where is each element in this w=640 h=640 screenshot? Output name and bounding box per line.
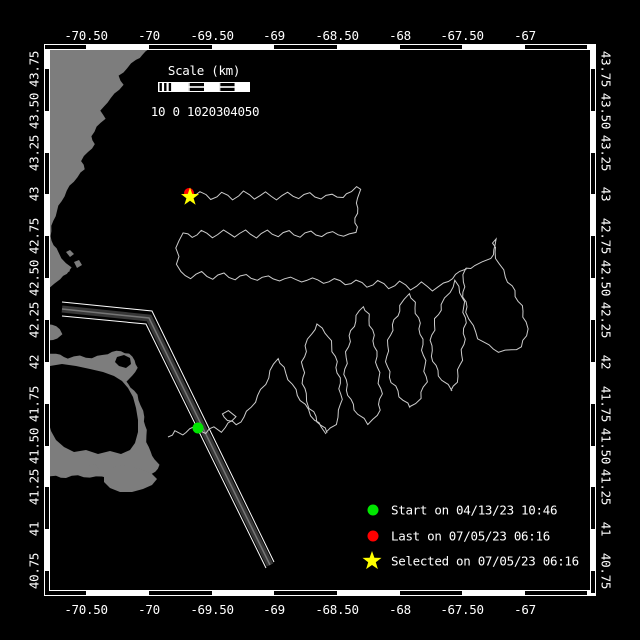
axis-label-lat-right: 42.75 (599, 218, 614, 254)
axis-label-lon-top: -70 (138, 28, 160, 43)
axis-label-lat-left: 43.50 (26, 93, 41, 129)
axis-label-lon-top: -69.50 (190, 28, 233, 43)
axis-label-lat-right: 41.25 (599, 469, 614, 505)
axis-label-lat-right: 43.75 (599, 51, 614, 87)
axis-label-lon-bottom: -68.50 (315, 602, 358, 617)
axis-label-lat-left: 41.50 (26, 428, 41, 464)
axis-label-lat-right: 41.75 (599, 386, 614, 422)
axis-label-lat-right: 42 (599, 355, 614, 369)
axis-label-lat-left: 43 (26, 187, 41, 201)
axis-label-lat-left: 42.75 (26, 218, 41, 254)
axis-label-lat-left: 42 (26, 355, 41, 369)
axis-label-lat-right: 41.50 (599, 428, 614, 464)
axis-label-lon-top: -67 (514, 28, 536, 43)
axis-label-lon-bottom: -67.50 (440, 602, 483, 617)
axis-label-lon-top: -68 (389, 28, 411, 43)
axis-label-lat-left: 41.25 (26, 469, 41, 505)
legend: Start on 04/13/23 10:46Last on 07/05/23 … (363, 503, 579, 570)
axis-label-lon-bottom: -69 (263, 602, 285, 617)
axis-label-lat-right: 42.25 (599, 302, 614, 338)
axis-label-lat-left: 42.50 (26, 260, 41, 296)
axis-label-lon-bottom: -70.50 (64, 602, 107, 617)
axis-label-lat-left: 43.25 (26, 135, 41, 171)
axis-label-lat-left: 43.75 (26, 51, 41, 87)
axis-label-lat-left: 42.25 (26, 302, 41, 338)
legend-item-label: Selected on 07/05/23 06:16 (391, 554, 579, 569)
axis-label-lat-left: 41 (26, 522, 41, 536)
scale-bar-tick-labels: 10 0 1020304050 (151, 104, 259, 119)
axis-label-lon-bottom: -67 (514, 602, 536, 617)
axis-label-lon-top: -69 (263, 28, 285, 43)
axis-label-lat-right: 43 (599, 187, 614, 201)
axis-label-lat-right: 43.25 (599, 135, 614, 171)
legend-start-dot-icon (368, 505, 379, 516)
axis-label-lon-bottom: -70 (138, 602, 160, 617)
map-canvas[interactable]: Scale (km)10 0 1020304050Start on 04/13/… (0, 0, 640, 640)
legend-last-dot-icon (368, 531, 379, 542)
axis-label-lon-bottom: -68 (389, 602, 411, 617)
legend-item-label: Last on 07/05/23 06:16 (391, 529, 550, 544)
start-position-marker[interactable] (193, 423, 204, 434)
legend-item-label: Start on 04/13/23 10:46 (391, 503, 557, 518)
glider-track-map-window: Scale (km)10 0 1020304050Start on 04/13/… (0, 0, 640, 640)
axis-label-lat-right: 42.50 (599, 260, 614, 296)
scale-bar-title: Scale (km) (168, 63, 240, 78)
axis-label-lat-right: 40.75 (599, 553, 614, 589)
axis-label-lon-top: -68.50 (315, 28, 358, 43)
axis-label-lon-bottom: -69.50 (190, 602, 233, 617)
axis-label-lon-top: -67.50 (440, 28, 483, 43)
axis-label-lat-left: 40.75 (26, 553, 41, 589)
axis-label-lat-left: 41.75 (26, 386, 41, 422)
axis-label-lon-top: -70.50 (64, 28, 107, 43)
axis-label-lat-right: 41 (599, 522, 614, 536)
axis-label-lat-right: 43.50 (599, 93, 614, 129)
